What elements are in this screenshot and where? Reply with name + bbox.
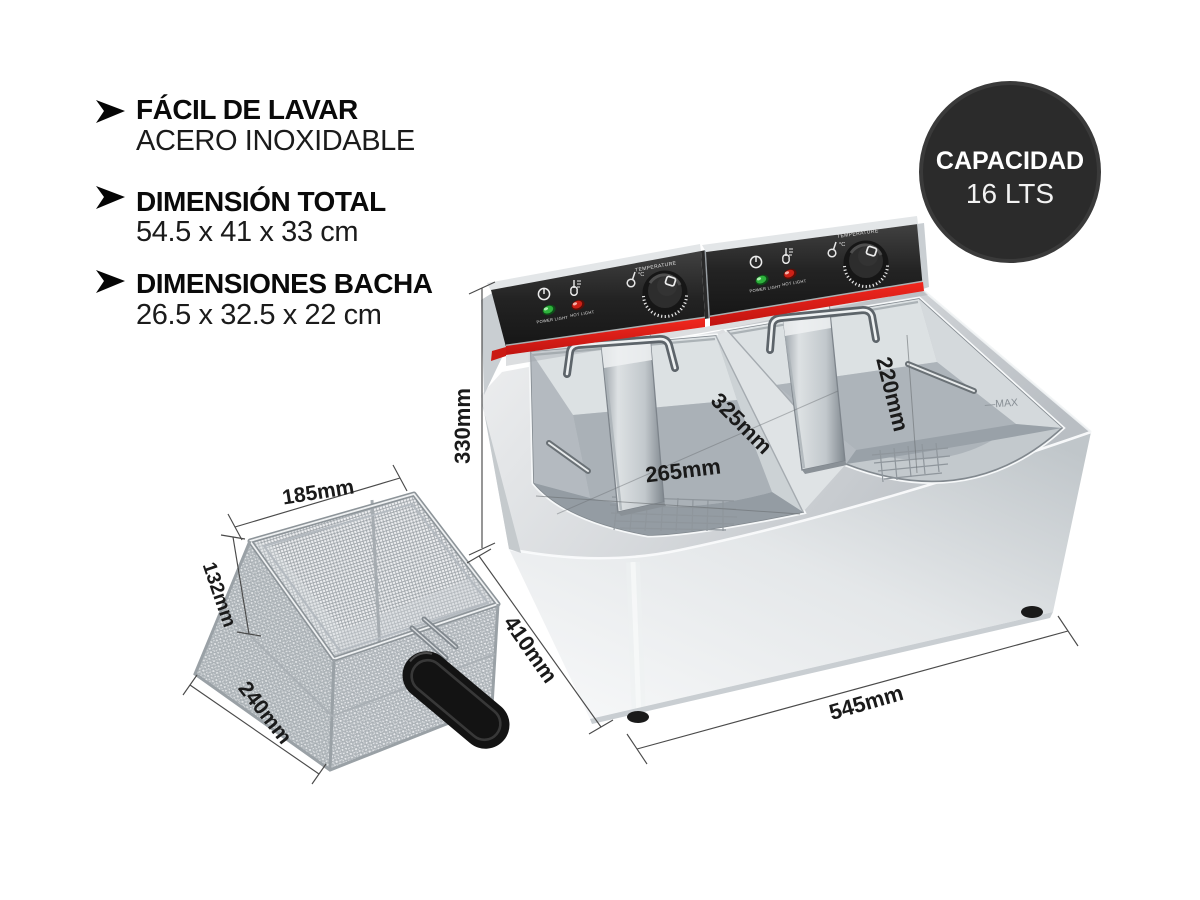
svg-text:FÁCIL DE LAVAR: FÁCIL DE LAVAR (136, 94, 358, 125)
svg-text:DIMENSIONES BACHA: DIMENSIONES BACHA (136, 268, 433, 299)
svg-text:—MAX: —MAX (984, 397, 1018, 411)
svg-text:CAPACIDAD: CAPACIDAD (936, 147, 1084, 175)
svg-text:330mm: 330mm (450, 388, 475, 464)
svg-text:°C: °C (638, 272, 644, 278)
svg-text:54.5 x 41 x 33 cm: 54.5 x 41 x 33 cm (136, 216, 358, 248)
svg-text:DIMENSIÓN TOTAL: DIMENSIÓN TOTAL (136, 186, 386, 217)
svg-text:26.5 x 32.5 x 22 cm: 26.5 x 32.5 x 22 cm (136, 299, 382, 331)
svg-text:°C: °C (839, 242, 845, 248)
svg-text:16 LTS: 16 LTS (966, 178, 1054, 209)
svg-text:ACERO INOXIDABLE: ACERO INOXIDABLE (136, 125, 415, 157)
